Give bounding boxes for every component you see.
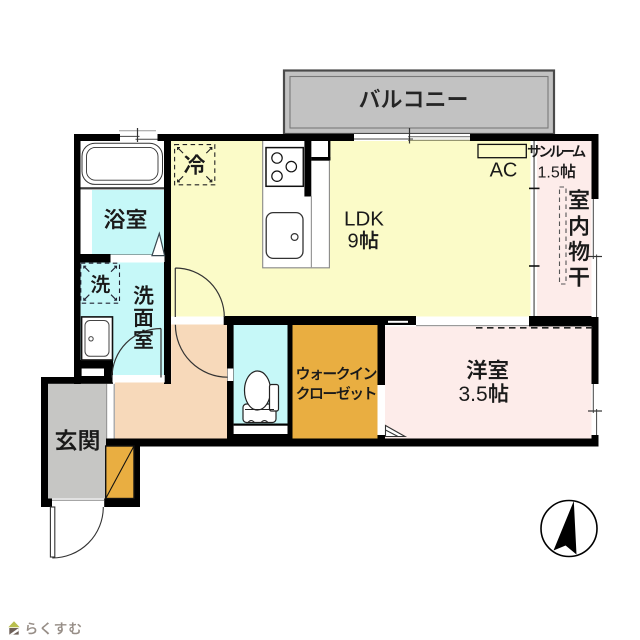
svg-text:1.5: 1.5	[538, 164, 560, 181]
svg-text:9: 9	[348, 231, 359, 253]
svg-text:LDK: LDK	[344, 207, 384, 230]
svg-text:3.5: 3.5	[459, 383, 488, 406]
svg-text:AC: AC	[490, 160, 518, 182]
